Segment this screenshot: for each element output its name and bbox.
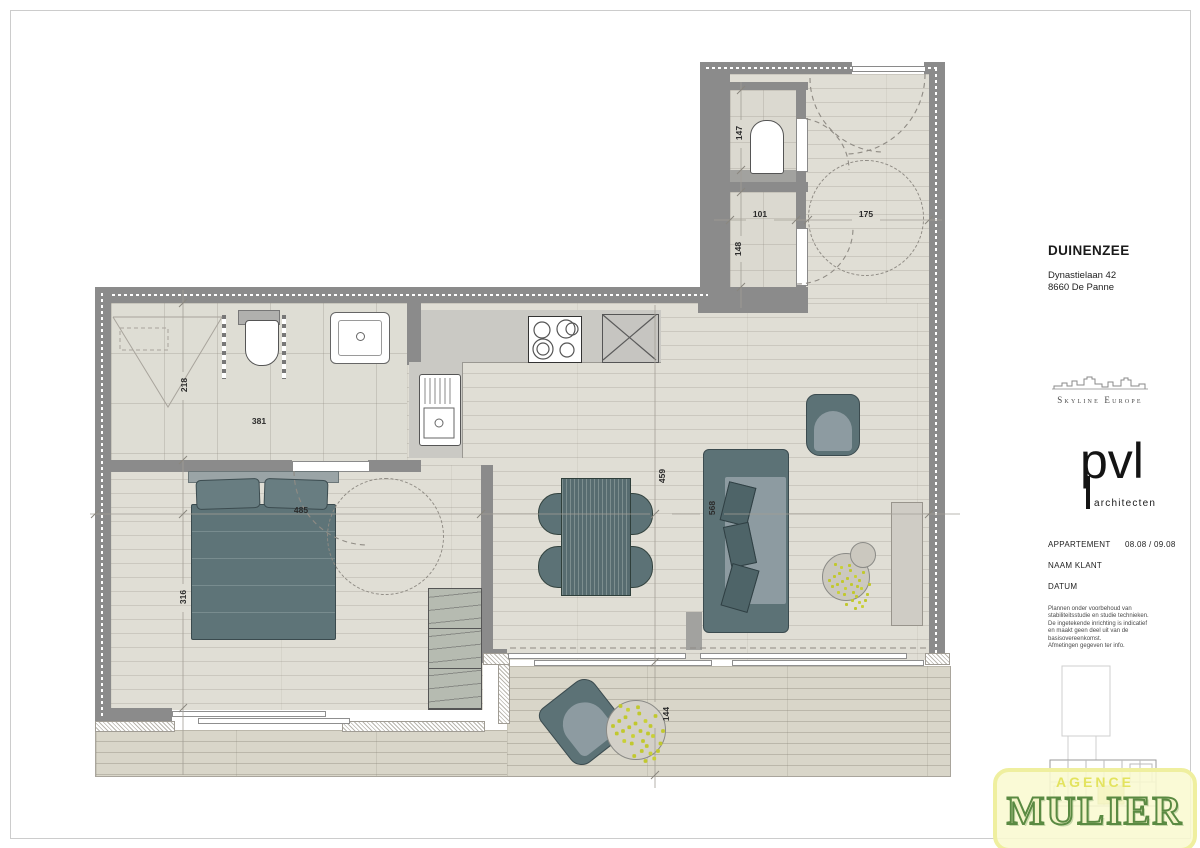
appliance-unit [602, 314, 659, 363]
developer-logo-text: Skyline Europe [1050, 395, 1150, 405]
address-line2: 8660 De Panne [1048, 282, 1116, 294]
wc-toilet [750, 120, 784, 174]
armchair [806, 394, 860, 456]
entrance-door-leaf [852, 66, 926, 72]
date-label: DATUM [1048, 582, 1077, 591]
floorplan-sheet: 218 381 485 316 459 568 144 147 101 148 … [0, 0, 1200, 848]
basin-drain [356, 332, 365, 341]
pillow-left [195, 478, 260, 510]
terrace-door-pier [686, 612, 702, 650]
apartment-row: APPARTEMENT 08.08 / 09.08 [1048, 540, 1176, 549]
dim-label: 459 [657, 463, 667, 489]
storage-door-leaf [796, 228, 808, 286]
wc-door-leaf [796, 118, 808, 172]
turning-circle-bedroom [327, 478, 444, 595]
disclaimer: Plannen onder voorbehoud van stabiliteit… [1048, 606, 1158, 650]
dim-label: 568 [707, 495, 717, 521]
skyline-icon [1050, 374, 1150, 390]
dim-label: 381 [246, 416, 272, 426]
architect-logo-sub: architecten [1094, 498, 1156, 509]
architect-logo-text: pvl [1080, 436, 1160, 486]
project-address: Dynastielaan 42 8660 De Panne [1048, 270, 1116, 294]
wall-shaft-vertical [700, 62, 730, 303]
client-label: NAAM KLANT [1048, 561, 1102, 570]
plant-foliage-terrace [634, 722, 638, 726]
apartment-value: 08.08 / 09.08 [1125, 540, 1176, 549]
side-table-round [850, 542, 876, 568]
dim-label: 316 [178, 584, 188, 610]
dim-label: 175 [853, 209, 879, 219]
plant-foliage-living [846, 577, 849, 580]
watermark-mulier: MULIER [997, 787, 1193, 834]
developer-logo: Skyline Europe [1050, 374, 1150, 405]
toilet-bowl [245, 320, 279, 366]
grab-bar-left [222, 315, 226, 379]
wall-bedroom-right [481, 465, 493, 655]
bed-duvet [191, 504, 336, 640]
wall-left-exterior [95, 287, 111, 722]
plant-pot-terrace [606, 700, 666, 760]
apartment-label: APPARTEMENT [1048, 540, 1110, 549]
grab-bar-right [282, 315, 286, 379]
logo-bar [1086, 476, 1090, 509]
project-title: DUINENZEE [1048, 243, 1130, 258]
dim-label: 144 [661, 701, 671, 727]
dim-label: 218 [179, 372, 189, 398]
wardrobe [428, 588, 482, 710]
tv-sideboard [891, 502, 923, 626]
agency-watermark: AGENCE MULIER [993, 768, 1197, 848]
architect-logo: pvl architecten [1080, 436, 1160, 512]
dining-table [561, 478, 631, 596]
dim-label: 101 [747, 209, 773, 219]
sofa [703, 449, 789, 633]
dim-label: 147 [734, 120, 744, 146]
wall-right-exterior [929, 62, 945, 662]
dim-label: 148 [733, 236, 743, 262]
address-line1: Dynastielaan 42 [1048, 270, 1116, 282]
kitchen-sink [419, 374, 461, 446]
cooktop [528, 316, 582, 363]
wall-bedroom-bottom [95, 708, 172, 722]
living-sliding-door-right [700, 653, 907, 659]
living-sliding-door-left [508, 653, 686, 659]
bedroom-sliding-door [172, 711, 326, 717]
dim-label: 485 [288, 505, 314, 515]
kitchen-wall-stub [407, 303, 421, 365]
